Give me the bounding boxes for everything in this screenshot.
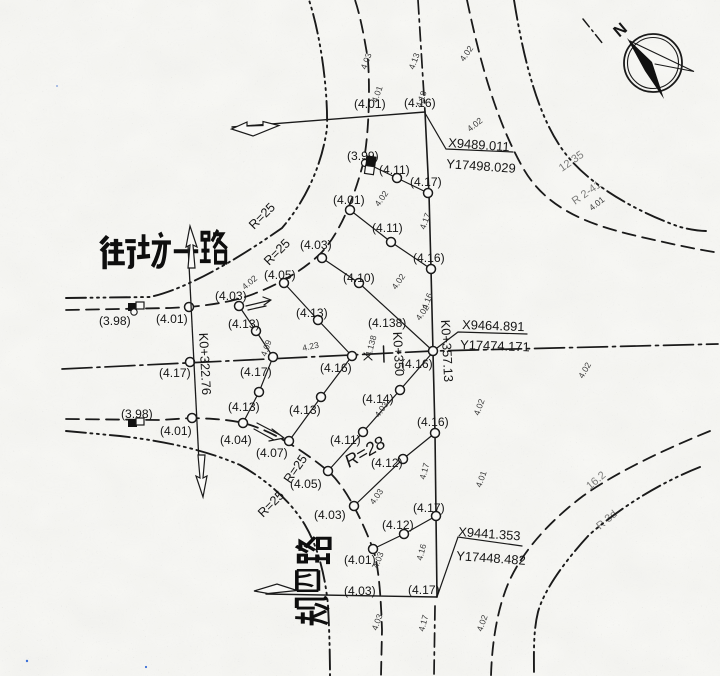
svg-text:(4.11): (4.11) <box>372 221 403 235</box>
svg-text:(4.13): (4.13) <box>289 403 321 417</box>
svg-text:(4.13): (4.13) <box>296 306 328 320</box>
svg-text:K0+350: K0+350 <box>390 331 407 376</box>
svg-text:(4.01): (4.01) <box>333 193 365 207</box>
svg-text:(3.98): (3.98) <box>121 407 153 421</box>
svg-text:(4.13): (4.13) <box>228 400 260 414</box>
svg-text:(4.16): (4.16) <box>320 361 352 375</box>
svg-text:(4.16): (4.16) <box>413 251 445 265</box>
svg-text:(4.03): (4.03) <box>314 508 346 522</box>
svg-text:(3.98): (3.98) <box>99 314 131 328</box>
svg-text:X9464.891: X9464.891 <box>462 317 525 334</box>
svg-text:(4.05): (4.05) <box>264 268 296 282</box>
svg-text:(4.13): (4.13) <box>228 317 260 331</box>
svg-text:(3.99): (3.99) <box>347 149 379 163</box>
svg-text:Y17474.171: Y17474.171 <box>460 337 530 354</box>
svg-text:(4.17): (4.17) <box>408 583 440 597</box>
svg-text:(4.17): (4.17) <box>240 365 272 379</box>
svg-text:(4.11): (4.11) <box>379 163 410 177</box>
svg-text:(4.03): (4.03) <box>300 238 332 252</box>
svg-text:(4.04): (4.04) <box>220 433 252 447</box>
svg-text:(4.17): (4.17) <box>410 175 442 189</box>
svg-text:(4.17): (4.17) <box>159 366 191 380</box>
svg-text:(4.03): (4.03) <box>215 289 247 303</box>
svg-text:(4.138): (4.138) <box>368 316 406 330</box>
svg-text:(4.12): (4.12) <box>382 518 414 532</box>
svg-text:(4.14): (4.14) <box>362 392 394 406</box>
svg-text:(4.07): (4.07) <box>256 446 288 460</box>
svg-text:(4.16): (4.16) <box>417 415 449 429</box>
svg-text:(4.17): (4.17) <box>413 501 445 515</box>
svg-text:(4.10): (4.10) <box>343 271 375 285</box>
svg-text:(4.01): (4.01) <box>160 424 192 438</box>
svg-text:(4.12): (4.12) <box>371 456 403 470</box>
svg-text:(4.01): (4.01) <box>156 312 188 326</box>
svg-text:(4.03): (4.03) <box>344 584 376 598</box>
